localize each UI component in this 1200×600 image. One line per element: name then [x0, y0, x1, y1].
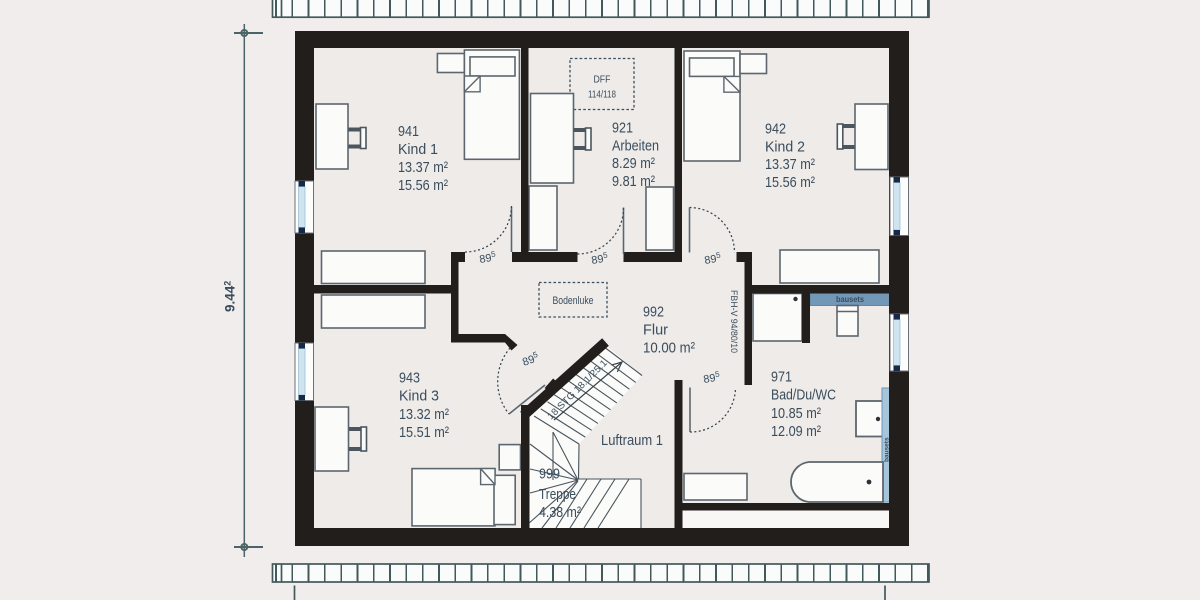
svg-text:13.37 m²: 13.37 m²	[398, 159, 448, 176]
svg-text:999: 999	[539, 466, 560, 483]
svg-text:943: 943	[399, 370, 420, 387]
svg-text:921: 921	[612, 120, 633, 137]
svg-text:15.51 m²: 15.51 m²	[399, 424, 449, 441]
svg-text:Luftraum 1: Luftraum 1	[601, 432, 663, 449]
svg-text:Flur: Flur	[643, 322, 668, 339]
svg-text:DFF: DFF	[594, 74, 611, 86]
svg-text:9.81 m²: 9.81 m²	[612, 173, 655, 190]
svg-text:8.29 m²: 8.29 m²	[612, 155, 655, 172]
svg-text:941: 941	[398, 123, 419, 140]
svg-text:Treppe: Treppe	[539, 486, 576, 503]
svg-text:Kind 2: Kind 2	[765, 139, 805, 156]
svg-text:bausets: bausets	[836, 294, 864, 304]
svg-text:Kind 1: Kind 1	[398, 141, 438, 158]
svg-text:15.56 m²: 15.56 m²	[765, 174, 815, 191]
svg-text:12.09 m²: 12.09 m²	[771, 423, 821, 440]
svg-text:FBH-V 94/80/10: FBH-V 94/80/10	[728, 290, 739, 353]
svg-text:942: 942	[765, 121, 786, 138]
svg-text:10.00 m²: 10.00 m²	[643, 340, 695, 357]
svg-text:Arbeiten: Arbeiten	[612, 138, 659, 155]
svg-text:4.38 m²: 4.38 m²	[539, 504, 581, 521]
svg-text:Bad/Du/WC: Bad/Du/WC	[771, 387, 836, 404]
svg-text:13.32 m²: 13.32 m²	[399, 406, 449, 423]
svg-text:992: 992	[643, 304, 664, 321]
svg-text:Kind 3: Kind 3	[399, 388, 439, 405]
svg-text:10.85 m²: 10.85 m²	[771, 405, 821, 422]
svg-text:15.56 m²: 15.56 m²	[398, 177, 448, 194]
svg-text:114/118: 114/118	[588, 89, 616, 101]
svg-text:13.37 m²: 13.37 m²	[765, 156, 815, 173]
svg-text:Bodenluke: Bodenluke	[553, 295, 594, 307]
svg-text:971: 971	[771, 369, 792, 386]
